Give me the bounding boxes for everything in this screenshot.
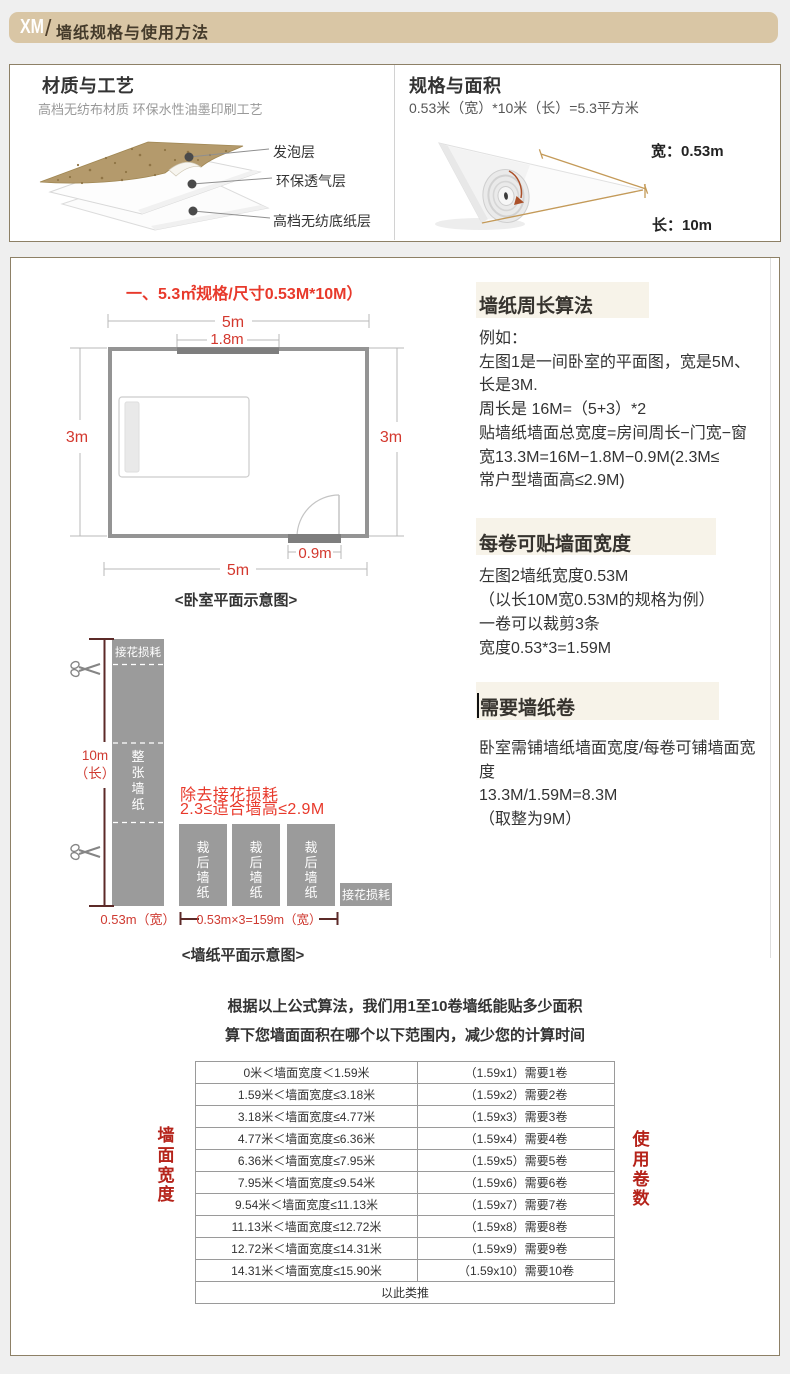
svg-text:0.53m×3=159m（宽）: 0.53m×3=159m（宽）: [196, 912, 321, 927]
svg-text:后: 后: [196, 855, 209, 870]
svg-text:0.9m: 0.9m: [298, 545, 331, 562]
svg-text:0.53m（宽）: 0.53m（宽）: [100, 912, 175, 927]
svg-text:（长）: （长）: [75, 766, 116, 781]
svg-text:墙: 墙: [196, 870, 209, 885]
svg-text:3m: 3m: [380, 429, 402, 446]
svg-text:5m: 5m: [227, 562, 249, 579]
svg-text:墙: 墙: [304, 870, 317, 885]
svg-text:纸: 纸: [131, 797, 144, 812]
svg-text:后: 后: [304, 855, 317, 870]
svg-text:裁: 裁: [249, 840, 262, 855]
svg-text:墙: 墙: [131, 781, 144, 796]
svg-text:3m: 3m: [66, 429, 88, 446]
svg-text:接花损耗: 接花损耗: [115, 645, 161, 659]
svg-text:纸: 纸: [249, 885, 262, 900]
svg-text:1.8m: 1.8m: [210, 331, 243, 348]
svg-text:张: 张: [131, 765, 144, 780]
svg-text:裁: 裁: [304, 840, 317, 855]
svg-text:纸: 纸: [304, 885, 317, 900]
svg-text:5m: 5m: [222, 314, 244, 331]
svg-text:整: 整: [131, 749, 144, 764]
svg-text:后: 后: [249, 855, 262, 870]
svg-text:墙: 墙: [249, 870, 262, 885]
svg-text:裁: 裁: [196, 840, 209, 855]
svg-text:10m: 10m: [82, 748, 108, 763]
svg-text:接花损耗: 接花损耗: [342, 887, 390, 902]
svg-text:纸: 纸: [196, 885, 209, 900]
